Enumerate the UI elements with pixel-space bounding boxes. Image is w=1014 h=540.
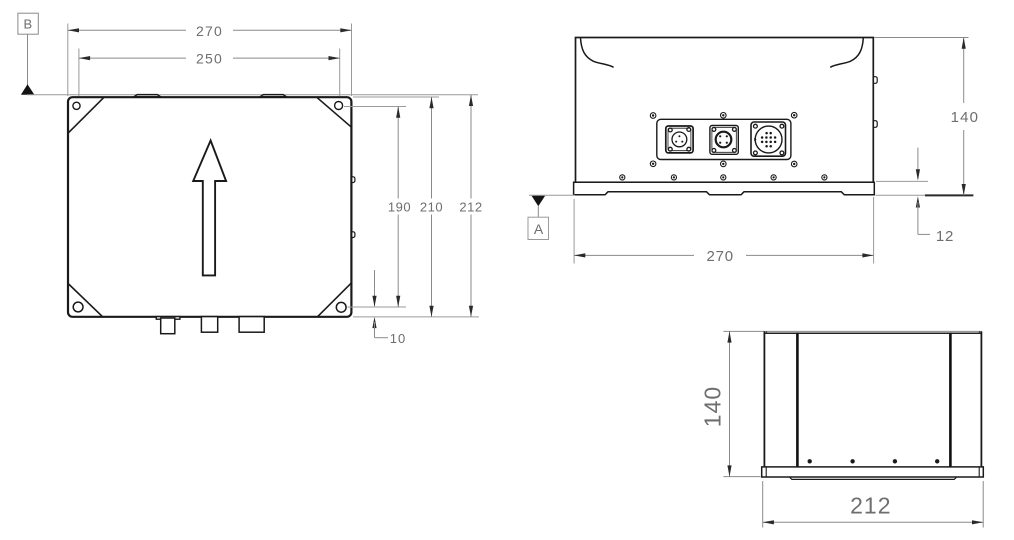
- svg-text:210: 210: [420, 200, 443, 215]
- svg-text:10: 10: [390, 331, 406, 346]
- svg-text:140: 140: [951, 109, 980, 126]
- svg-text:270: 270: [706, 248, 733, 265]
- svg-text:190: 190: [388, 200, 411, 215]
- svg-text:270: 270: [196, 23, 223, 39]
- svg-text:250: 250: [196, 51, 223, 67]
- svg-text:A: A: [534, 221, 544, 237]
- svg-text:B: B: [23, 17, 32, 32]
- svg-text:12: 12: [936, 228, 954, 245]
- svg-text:212: 212: [459, 200, 482, 215]
- svg-text:140: 140: [700, 386, 726, 427]
- svg-text:212: 212: [850, 493, 891, 519]
